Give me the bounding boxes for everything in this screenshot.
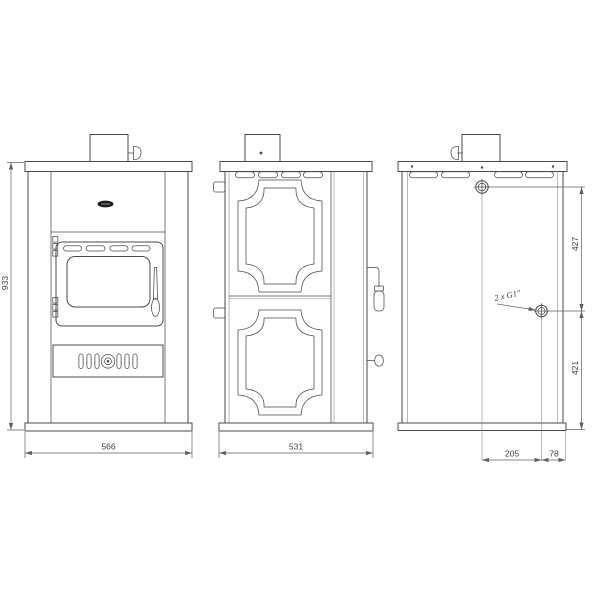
g1-fitting-lower	[534, 303, 549, 318]
rear-body	[402, 172, 563, 424]
side-pipe-stub-lower	[214, 308, 226, 318]
side-top-slots	[236, 172, 323, 178]
drawing-svg: 933 566 531 427 421 205 78 2 x G1"	[0, 0, 600, 600]
rear-upper-spacing-dimension: 427	[570, 237, 580, 252]
rear-offset-inner-dimension: 205	[505, 449, 520, 459]
side-decorative-panel-upper	[238, 180, 322, 292]
front-view	[25, 135, 192, 432]
side-view	[214, 135, 385, 432]
side-air-knob	[367, 355, 383, 366]
front-damper-key-icon	[128, 146, 141, 159]
side-depth-dimension: 531	[289, 442, 304, 452]
door-hinge-upper	[53, 237, 58, 257]
rear-chimney-stub	[462, 135, 500, 162]
side-plinth	[219, 423, 373, 431]
front-height-dimension: 933	[0, 276, 10, 291]
stove-technical-drawing: 933 566 531 427 421 205 78 2 x G1"	[0, 0, 600, 600]
screw-dot	[552, 165, 554, 167]
door-vent-slots	[64, 246, 151, 251]
side-chimney-stub	[245, 135, 280, 162]
rear-offset-outer-dimension: 78	[549, 449, 559, 459]
rear-top-slots	[410, 172, 554, 178]
door-window	[67, 257, 150, 308]
air-control-knob	[101, 355, 115, 369]
side-pipe-stub-upper	[214, 182, 226, 192]
g1-fitting-upper	[474, 179, 490, 195]
front-plinth	[25, 423, 192, 431]
front-chimney-stub	[90, 135, 128, 162]
rear-damper-key-icon	[451, 146, 463, 159]
fire-door	[56, 242, 163, 326]
screw-dot	[481, 166, 483, 168]
front-width-dimension: 566	[101, 442, 116, 452]
door-hinge-lower	[53, 298, 58, 318]
screw-dot	[411, 165, 413, 167]
fitting-leader-line	[497, 304, 536, 310]
front-body	[28, 172, 188, 424]
front-top-plate	[25, 162, 192, 172]
side-chimney-dot	[260, 152, 263, 155]
fitting-note-label: 2 x G1"	[493, 288, 521, 303]
door-handle	[152, 268, 160, 317]
side-decorative-panel-lower	[238, 310, 322, 415]
rear-lower-spacing-dimension: 421	[570, 361, 580, 376]
side-door-handle	[367, 268, 384, 312]
side-top-plate	[220, 162, 372, 172]
